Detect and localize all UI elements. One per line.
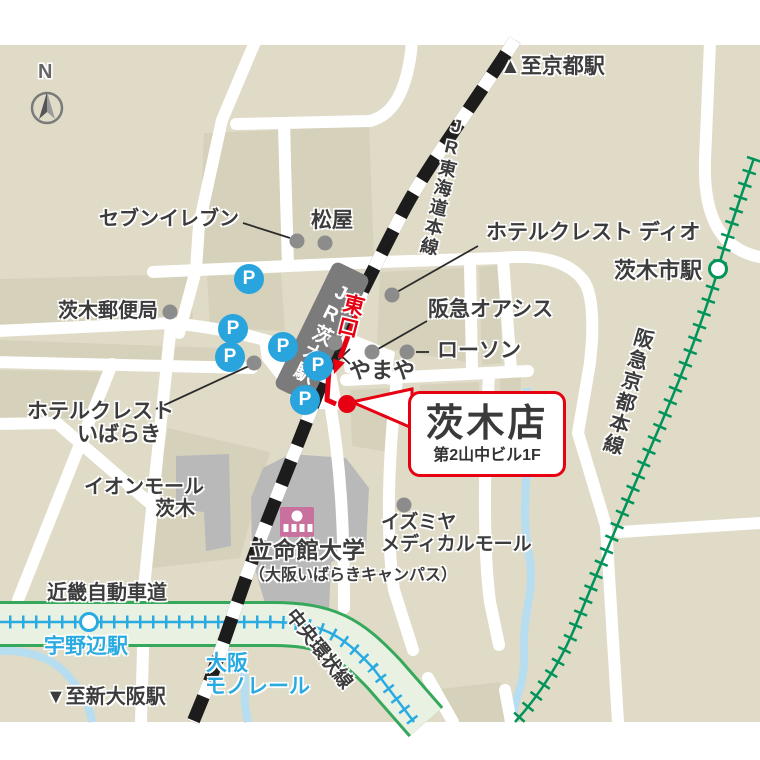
label-hotel-crest-ibaraki-2: いばらき (77, 424, 161, 446)
parking-icon: P (234, 264, 264, 294)
izumiya-dot (397, 498, 412, 513)
label-aeon-mall-1: イオンモール (84, 477, 204, 498)
parking-icon: P (268, 332, 298, 362)
parking-icon: P (218, 314, 248, 344)
parking-icon: P (215, 342, 245, 372)
label-hankyu-oasis: 阪急オアシス (428, 299, 553, 321)
label-to-shin-osaka: ▼至新大阪駅 (46, 687, 166, 708)
parking-icon: P (303, 351, 333, 381)
store-callout: 茨木店 第2山中ビル1F (408, 391, 566, 477)
label-post-office: 茨木郵便局 (58, 301, 158, 322)
ibarakishi-station-circle (708, 259, 728, 279)
label-matsuya: 松屋 (311, 210, 353, 232)
label-to-kyoto: ▲至京都駅 (500, 56, 605, 78)
label-aeon-mall-2: 茨木 (155, 499, 195, 520)
label-seven-eleven: セブンイレブン (99, 209, 239, 230)
yamaya-dot (328, 336, 343, 351)
label-yamaya: やまや (349, 359, 415, 382)
unobe-station-circle (79, 612, 99, 632)
seven-eleven-dot (290, 234, 305, 249)
label-ritsumeikan-campus: （大阪いばらきキャンパス） (249, 568, 457, 585)
hankyu-oasis-dot (365, 345, 380, 360)
label-izumiya-2: メディカルモール (381, 535, 532, 555)
label-ritsumeikan: 立命館大学 (250, 538, 365, 562)
label-lawson: ローソン (437, 340, 521, 362)
matsuya-dot (318, 236, 333, 251)
post-office-dot (163, 305, 178, 320)
label-osaka-monorail-2: モノレール (205, 676, 310, 698)
label-unobe-station: 宇野辺駅 (44, 636, 128, 658)
label-hotel-crest-dio: ホテルクレスト ディオ (486, 222, 700, 244)
parking-icon: P (290, 385, 320, 415)
hotel-crest-ibaraki-dot (247, 356, 262, 371)
access-map: JR茨木駅 ▲至京都駅セブンイレブン松屋ホテルクレスト ディオ茨木市駅阪急オアシ… (0, 0, 760, 760)
store-name: 茨木店 (425, 405, 548, 443)
label-osaka-monorail-1: 大阪 (206, 653, 248, 675)
label-izumiya-1: イズミヤ (381, 513, 456, 533)
store-building: 第2山中ビル1F (433, 448, 541, 464)
label-kinki-expressway: 近畿自動車道 (47, 583, 167, 604)
label-hotel-crest-ibaraki-1: ホテルクレスト (27, 401, 174, 423)
hotel-crest-dio-dot (385, 288, 400, 303)
label-compass-n: N (38, 62, 52, 83)
lawson-dot (400, 345, 415, 360)
university-icon (280, 507, 314, 537)
label-ibarakishi-station: 茨木市駅 (614, 259, 702, 282)
